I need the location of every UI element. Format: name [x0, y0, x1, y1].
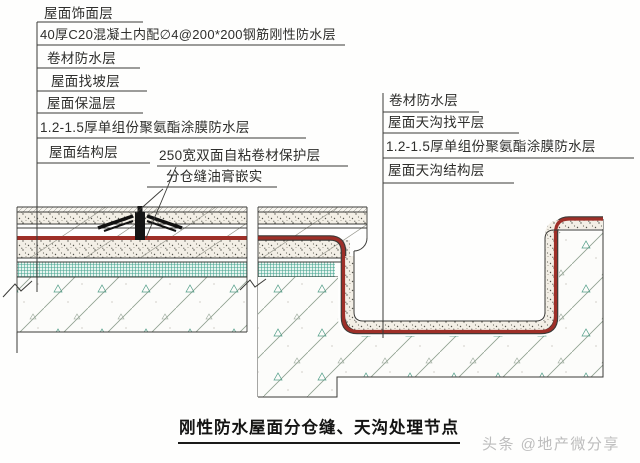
drawing-title: 刚性防水屋面分仓缝、天沟处理节点	[178, 414, 460, 444]
construction-detail-sheet: 屋面饰面层 40厚C20混凝土内配∅4@200*200钢筋刚性防水层 卷材防水层…	[0, 0, 640, 463]
gutter-label-membrane: 卷材防水层	[389, 94, 458, 109]
layer-label-finish: 屋面饰面层	[44, 7, 113, 22]
callout-protection-strip: 250宽双面自粘卷材保护层	[159, 149, 320, 164]
layer-label-structure: 屋面结构层	[49, 146, 118, 161]
layer-label-insulation: 屋面保温层	[47, 97, 116, 112]
gutter-label-polyurethane: 1.2-1.5厚单组份聚氨酯涂膜防水层	[386, 140, 596, 155]
layer-label-slope: 屋面找坡层	[51, 75, 120, 90]
layer-label-rigid-waterproof: 40厚C20混凝土内配∅4@200*200钢筋刚性防水层	[40, 28, 336, 42]
layer-label-membrane: 卷材防水层	[47, 52, 116, 67]
gutter-label-structure: 屋面天沟结构层	[388, 164, 485, 179]
layer-label-polyurethane: 1.2-1.5厚单组份聚氨酯涂膜防水层	[40, 121, 250, 136]
gutter-label-leveling: 屋面天沟找平层	[388, 116, 485, 131]
callout-joint-sealant: 分仓缝油膏嵌实	[166, 170, 263, 185]
watermark-text: 头条 @地产微分享	[482, 433, 620, 454]
roof-detail-drawing	[0, 0, 640, 463]
